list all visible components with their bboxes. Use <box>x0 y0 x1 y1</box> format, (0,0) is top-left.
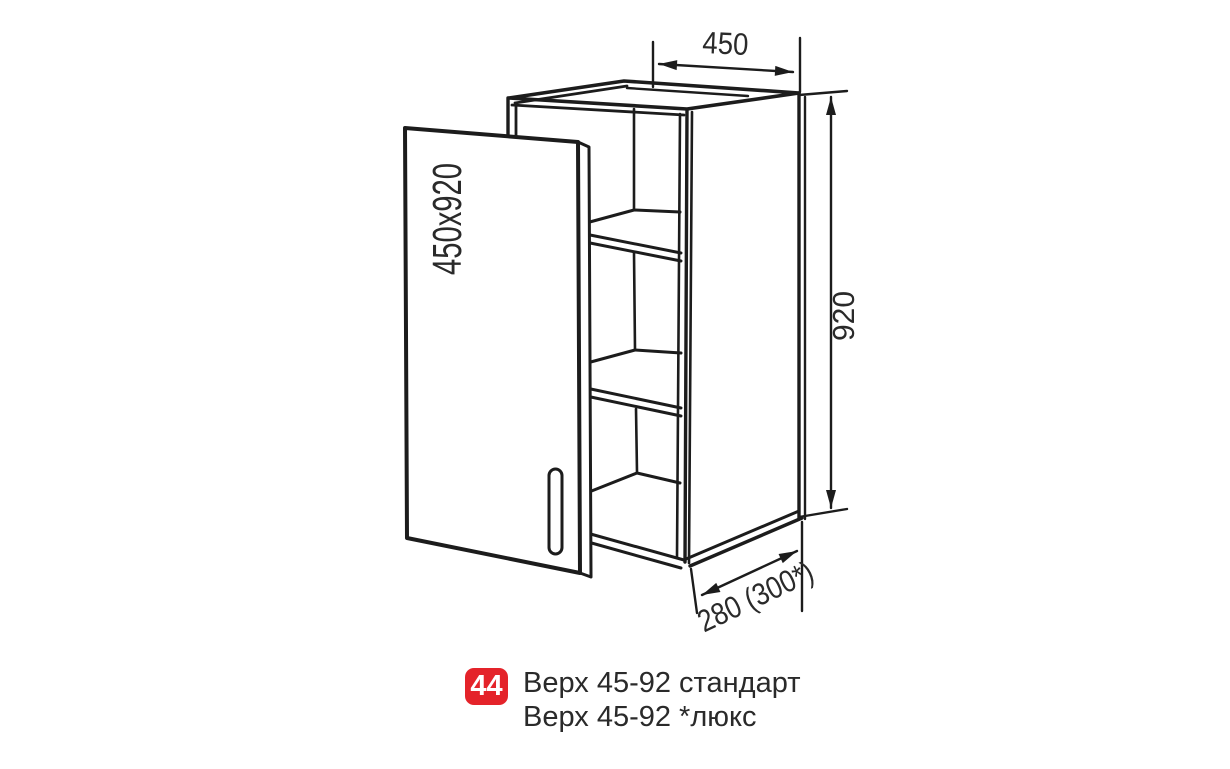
height-dimension-label: 920 <box>826 291 861 341</box>
caption-text: Верх 45-92 стандарт Верх 45-92 *люкс <box>523 666 800 734</box>
cabinet-diagram: 450x920 450 920 280 (300*) <box>0 0 1230 769</box>
door-handle <box>549 469 562 554</box>
cabinet-bottom <box>587 473 684 568</box>
caption-line-2: Верх 45-92 *люкс <box>523 700 800 734</box>
height-dimension: 920 <box>799 91 861 517</box>
depth-dimension-label: 280 (300*) <box>692 554 819 639</box>
interior-corner-line <box>634 109 637 472</box>
page: 450x920 450 920 280 (300*) 44 Верх 45-92 <box>0 0 1230 769</box>
item-number-badge: 44 <box>465 668 508 705</box>
width-dimension: 450 <box>653 25 800 92</box>
shelf-lower <box>586 350 681 416</box>
door-size-label: 450x920 <box>424 163 470 275</box>
caption: 44 Верх 45-92 стандарт Верх 45-92 *люкс <box>465 666 800 734</box>
caption-line-1: Верх 45-92 стандарт <box>523 666 800 700</box>
width-dimension-label: 450 <box>702 25 749 62</box>
cabinet-door: 450x920 <box>405 128 591 577</box>
